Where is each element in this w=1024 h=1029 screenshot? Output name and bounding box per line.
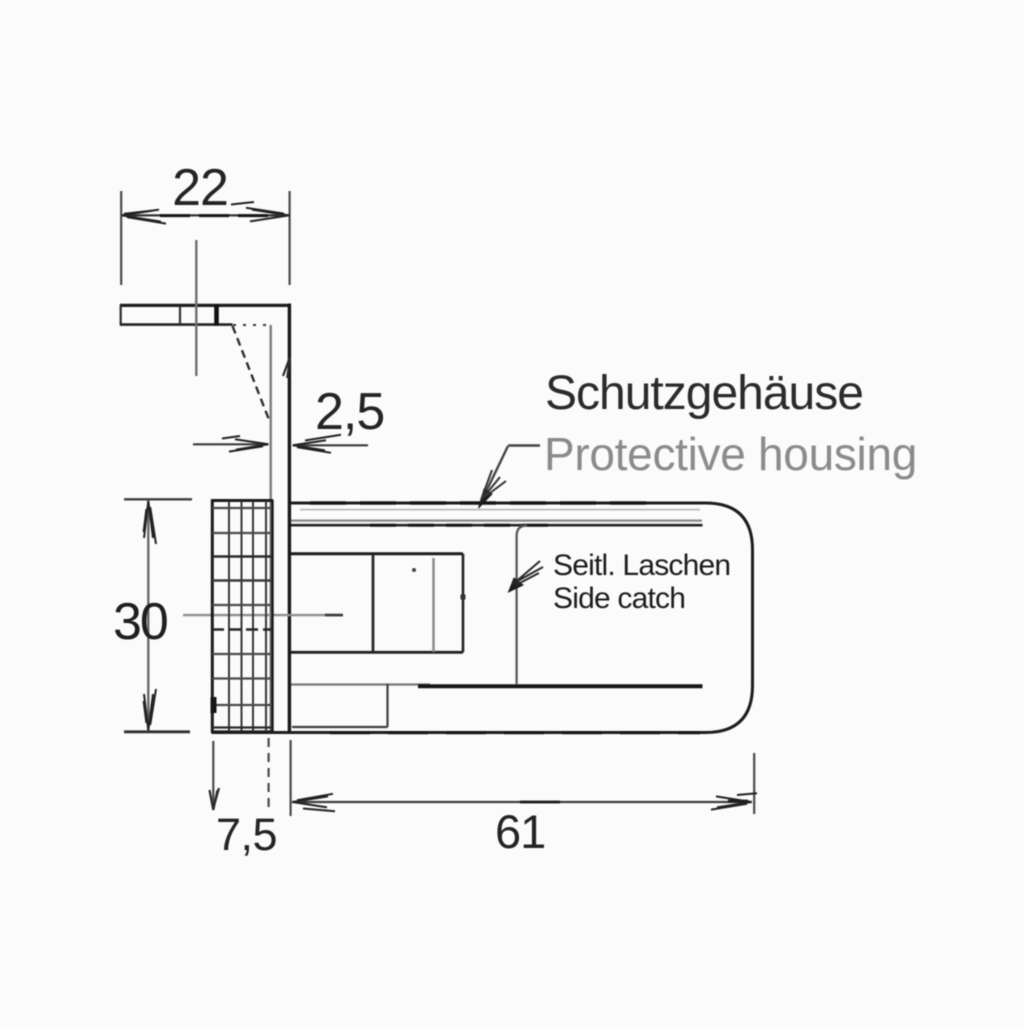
svg-text:7,5: 7,5 [216, 809, 277, 860]
svg-text:Protective housing: Protective housing [544, 428, 917, 480]
svg-text:Side catch: Side catch [553, 582, 685, 615]
svg-text:Schutzgehäuse: Schutzgehäuse [545, 367, 863, 420]
svg-text:22: 22 [172, 159, 228, 217]
svg-text:2,5: 2,5 [315, 383, 384, 441]
svg-text:Seitl. Laschen: Seitl. Laschen [553, 549, 730, 582]
svg-text:30: 30 [113, 593, 167, 651]
svg-text:61: 61 [495, 805, 545, 858]
